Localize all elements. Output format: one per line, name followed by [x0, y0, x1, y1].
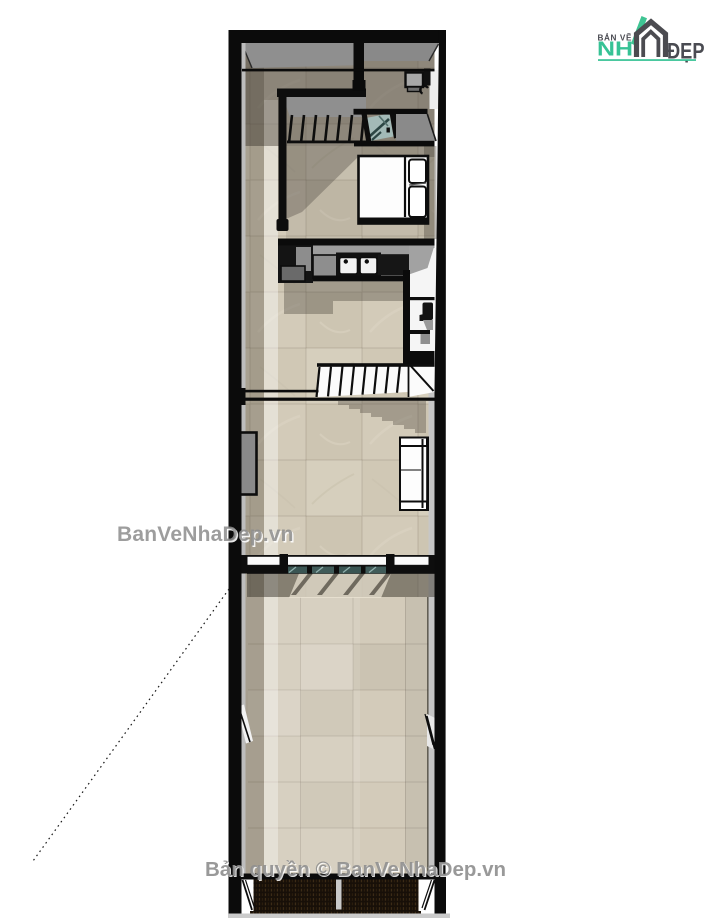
svg-text:NH: NH: [597, 38, 633, 61]
svg-text:Bản quyền © BanVeNhaDep.vn: Bản quyền © BanVeNhaDep.vn: [205, 858, 506, 881]
svg-text:BanVeNhaDep.vn: BanVeNhaDep.vn: [117, 523, 294, 546]
